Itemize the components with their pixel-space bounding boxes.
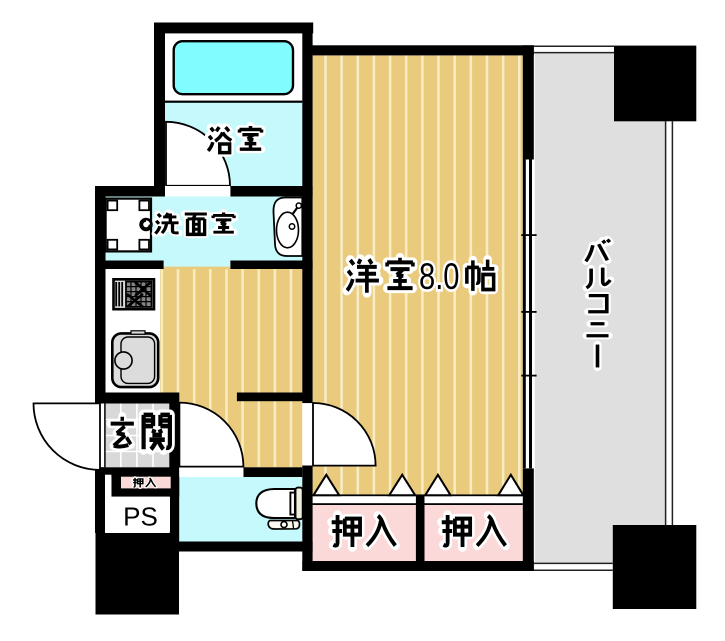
svg-text:PS: PS bbox=[123, 502, 158, 532]
svg-text:8.0: 8.0 bbox=[419, 255, 460, 297]
